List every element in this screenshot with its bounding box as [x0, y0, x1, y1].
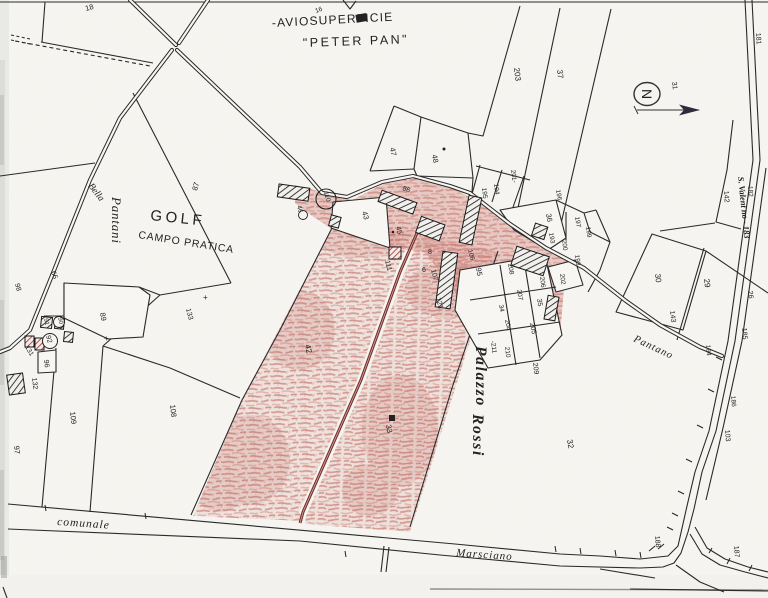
svg-text:95: 95 [474, 267, 484, 277]
svg-text:195: 195 [480, 187, 488, 199]
svg-text:37: 37 [555, 69, 565, 79]
svg-text:108: 108 [168, 404, 178, 418]
svg-text:185: 185 [740, 328, 748, 340]
svg-text:26: 26 [746, 290, 754, 299]
svg-text:142: 142 [722, 191, 730, 203]
svg-text:181: 181 [754, 33, 762, 45]
svg-text:210: 210 [503, 346, 511, 358]
svg-text:89: 89 [98, 312, 108, 322]
svg-text:199: 199 [584, 226, 592, 238]
svg-text:103: 103 [723, 430, 731, 442]
svg-text:6: 6 [422, 267, 426, 274]
svg-text:33: 33 [384, 424, 394, 434]
svg-text:Pantani: Pantani [109, 196, 124, 244]
svg-text:202: 202 [558, 273, 566, 285]
svg-text:48: 48 [430, 154, 440, 164]
svg-text:8: 8 [428, 249, 432, 256]
svg-text:47: 47 [388, 147, 398, 157]
svg-text:36: 36 [544, 213, 554, 223]
svg-text:109: 109 [68, 411, 78, 425]
svg-text:203: 203 [512, 67, 523, 82]
svg-text:+: + [104, 334, 109, 343]
svg-text:96: 96 [42, 359, 50, 368]
svg-text:194: 194 [492, 183, 500, 195]
svg-text:29: 29 [702, 278, 712, 288]
svg-text:Palazzo: Palazzo [472, 346, 489, 407]
svg-text:35: 35 [535, 298, 543, 307]
svg-text:209: 209 [531, 362, 539, 375]
svg-text:187: 187 [732, 546, 740, 558]
svg-text:200: 200 [560, 239, 568, 251]
svg-text:+: + [203, 293, 208, 302]
svg-text:30: 30 [653, 273, 663, 283]
svg-text:206: 206 [538, 276, 546, 288]
svg-text:198: 198 [573, 254, 581, 266]
svg-text:132: 132 [30, 377, 38, 390]
svg-text:186: 186 [729, 396, 737, 408]
svg-text:N: N [639, 89, 655, 99]
svg-text:Rossi: Rossi [469, 413, 486, 457]
svg-text:184: 184 [704, 345, 712, 357]
svg-text:-182: -182 [746, 184, 754, 198]
svg-text:31: 31 [670, 81, 678, 90]
svg-text:97: 97 [12, 445, 22, 454]
svg-text:143: 143 [668, 310, 676, 323]
